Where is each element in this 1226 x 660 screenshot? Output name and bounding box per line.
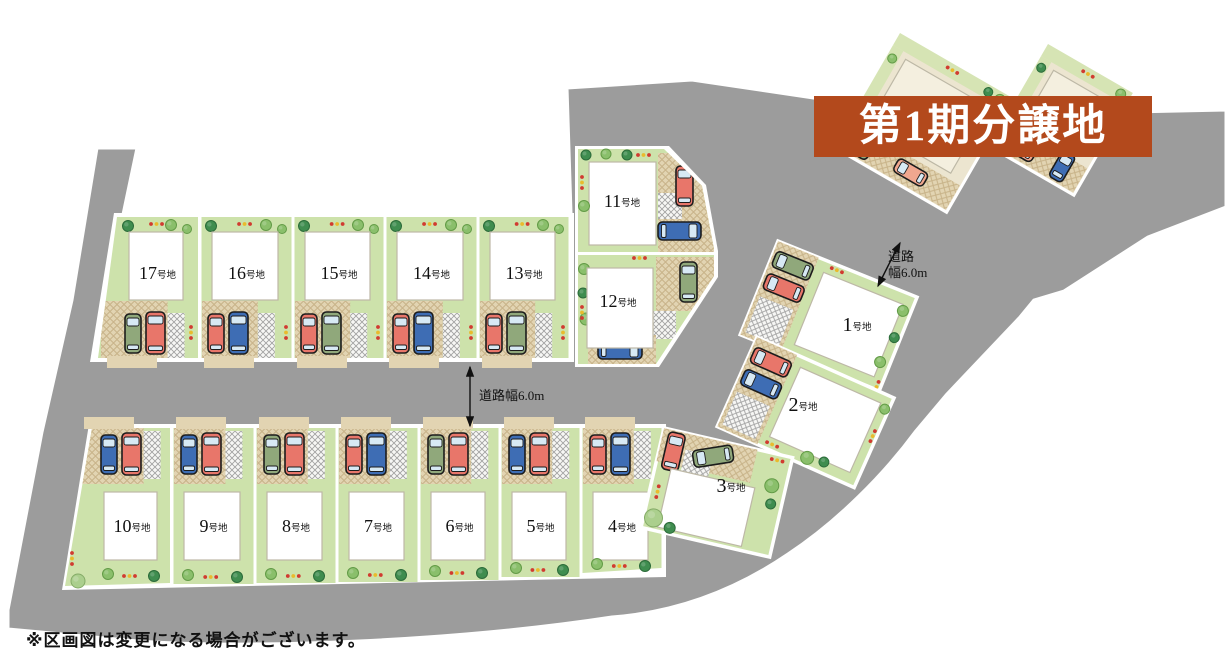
tree-highlight — [349, 569, 353, 573]
flower-icon — [376, 331, 380, 335]
tree-highlight — [267, 570, 271, 574]
lot-14: 14号地 — [387, 217, 477, 358]
tree-highlight — [447, 221, 451, 225]
flower-icon — [203, 575, 207, 579]
tree-highlight — [150, 572, 154, 576]
tree-highlight — [354, 221, 358, 225]
flower-icon — [376, 336, 380, 340]
flower-icon — [189, 331, 193, 335]
tree-icon — [477, 568, 488, 579]
tree-icon — [558, 565, 569, 576]
tree-highlight — [556, 226, 560, 230]
flower-icon — [580, 186, 584, 190]
tree-highlight — [559, 566, 563, 570]
terrace-pad — [552, 431, 569, 479]
terrace-pad — [634, 431, 651, 479]
tree-highlight — [464, 226, 468, 230]
tree-icon — [348, 568, 359, 579]
tree-icon — [484, 221, 495, 232]
tree-icon — [538, 220, 549, 231]
flower-icon — [248, 222, 252, 226]
tree-icon — [555, 225, 564, 234]
tree-highlight — [580, 290, 584, 294]
flower-icon — [580, 305, 584, 309]
flower-icon — [189, 336, 193, 340]
flower-icon — [561, 325, 565, 329]
tree-icon — [149, 571, 160, 582]
lot-16: 16号地 — [202, 217, 292, 358]
flower-icon — [561, 336, 565, 340]
flower-icon — [623, 564, 627, 568]
tree-icon — [353, 220, 364, 231]
tree-highlight — [512, 564, 516, 568]
car-icon-blue — [658, 222, 701, 240]
road-width-label-center: 道路幅6.0m — [479, 385, 544, 404]
car-icon-blue — [611, 433, 630, 475]
flower-icon — [335, 222, 339, 226]
tree-highlight — [184, 571, 188, 575]
terrace-pad — [350, 313, 367, 358]
tree-icon — [232, 572, 243, 583]
flower-icon — [469, 325, 473, 329]
tree-icon — [261, 220, 272, 231]
flower-icon — [469, 336, 473, 340]
terrace-pad — [471, 431, 488, 479]
flower-icon — [617, 564, 621, 568]
tree-highlight — [104, 570, 108, 574]
tree-highlight — [73, 576, 79, 582]
terrace-pad — [258, 313, 275, 358]
flower-icon — [526, 222, 530, 226]
driveway-apron — [176, 417, 226, 429]
flower-icon — [580, 311, 584, 315]
tree-icon — [640, 561, 651, 572]
flower-icon — [122, 574, 126, 578]
tree-icon — [511, 563, 522, 574]
car-icon-green — [507, 312, 526, 354]
flower-icon — [469, 331, 473, 335]
terrace-pad — [390, 431, 407, 479]
car-icon-red — [449, 433, 468, 475]
flower-icon — [297, 574, 301, 578]
tree-icon — [278, 225, 287, 234]
car-icon-blue — [509, 435, 525, 474]
flower-icon — [70, 557, 74, 561]
road-width-label-right: 道路 幅6.0m — [888, 249, 927, 281]
tree-icon — [183, 570, 194, 581]
car-icon-red — [202, 433, 221, 475]
driveway-apron — [585, 417, 635, 429]
tree-highlight — [603, 151, 607, 155]
driveway-apron — [259, 417, 309, 429]
tree-highlight — [279, 226, 283, 230]
tree-icon — [463, 225, 472, 234]
tree-icon — [103, 569, 114, 580]
flower-icon — [379, 573, 383, 577]
flower-icon — [189, 325, 193, 329]
driveway-apron — [423, 417, 473, 429]
road-width-label-right-line1: 道路 — [888, 249, 927, 265]
flower-icon — [433, 222, 437, 226]
driveway-apron — [341, 417, 391, 429]
lot-5: 5号地 — [502, 428, 580, 577]
flower-icon — [580, 181, 584, 185]
flower-icon — [284, 325, 288, 329]
tree-highlight — [184, 226, 188, 230]
flower-icon — [531, 568, 535, 572]
tree-highlight — [593, 560, 597, 564]
tree-icon — [579, 201, 590, 212]
tree-icon — [299, 221, 310, 232]
flower-icon — [632, 256, 636, 260]
flower-icon — [209, 575, 213, 579]
flower-icon — [291, 574, 295, 578]
tree-highlight — [207, 222, 211, 226]
tree-highlight — [580, 265, 584, 269]
car-icon-red — [346, 435, 362, 474]
flower-icon — [368, 573, 372, 577]
tree-icon — [601, 149, 611, 159]
terrace-pad — [443, 313, 460, 358]
flower-icon — [428, 222, 432, 226]
car-icon-blue — [181, 435, 197, 474]
tree-highlight — [431, 567, 435, 571]
terrace-pad — [168, 313, 185, 358]
flower-icon — [373, 573, 377, 577]
tree-highlight — [583, 152, 587, 156]
tree-highlight — [233, 573, 237, 577]
car-icon-red — [301, 314, 317, 353]
tree-icon — [166, 220, 177, 231]
site-plan-map: 17号地16号地15号地14号地13号地10号地9号地8号地7号地6号地5号地4… — [0, 0, 1226, 660]
terrace-pad — [535, 313, 552, 358]
flower-icon — [214, 575, 218, 579]
flower-icon — [284, 336, 288, 340]
flower-icon — [561, 331, 565, 335]
terrace-pad — [308, 431, 325, 479]
tree-highlight — [371, 226, 375, 230]
flower-icon — [580, 316, 584, 320]
flower-icon — [643, 256, 647, 260]
flower-icon — [128, 574, 132, 578]
flower-icon — [515, 222, 519, 226]
lot-15: 15号地 — [295, 217, 384, 358]
tree-icon — [71, 574, 85, 588]
terrace-pad — [225, 431, 242, 479]
terrace-pad — [144, 431, 161, 479]
tree-icon — [183, 225, 192, 234]
flower-icon — [647, 153, 651, 157]
flower-icon — [638, 256, 642, 260]
tree-icon — [622, 150, 632, 160]
driveway-apron — [482, 356, 532, 368]
tree-icon — [446, 220, 457, 231]
tree-highlight — [397, 571, 401, 575]
car-icon-red — [146, 312, 165, 354]
flower-icon — [450, 571, 454, 575]
tree-highlight — [478, 569, 482, 573]
flower-icon — [536, 568, 540, 572]
car-icon-green — [428, 435, 444, 474]
lot-9: 9号地 — [174, 428, 254, 584]
car-icon-blue — [414, 312, 433, 354]
flower-icon — [243, 222, 247, 226]
phase-banner: 第1期分譲地 — [814, 96, 1152, 157]
lot-7: 7号地 — [339, 428, 418, 582]
tree-highlight — [485, 222, 489, 226]
flower-icon — [520, 222, 524, 226]
driveway-apron — [297, 356, 347, 368]
flower-icon — [149, 222, 153, 226]
tree-highlight — [539, 221, 543, 225]
flower-icon — [642, 153, 646, 157]
tree-highlight — [624, 152, 628, 156]
car-icon-blue — [367, 433, 386, 475]
driveway-apron — [84, 417, 134, 429]
flower-icon — [612, 564, 616, 568]
flower-icon — [155, 222, 159, 226]
road-width-label-right-line2: 幅6.0m — [888, 265, 927, 281]
car-icon-red — [590, 435, 606, 474]
flower-icon — [636, 153, 640, 157]
tree-icon — [206, 221, 217, 232]
flower-icon — [422, 222, 426, 226]
car-icon-red — [122, 433, 141, 475]
lot-8: 8号地 — [257, 428, 336, 583]
tree-icon — [391, 221, 402, 232]
tree-highlight — [300, 222, 304, 226]
tree-highlight — [262, 221, 266, 225]
car-icon-blue — [229, 312, 248, 354]
car-icon-blue — [101, 435, 117, 474]
flower-icon — [286, 574, 290, 578]
tree-icon — [581, 150, 591, 160]
car-icon-green — [680, 262, 697, 302]
car-icon-red — [486, 314, 502, 353]
tree-icon — [430, 566, 441, 577]
car-icon-green — [322, 312, 341, 354]
tree-highlight — [580, 202, 584, 206]
tree-icon — [592, 559, 603, 570]
flower-icon — [341, 222, 345, 226]
driveway-apron — [107, 356, 157, 368]
car-icon-red — [285, 433, 304, 475]
flower-icon — [70, 551, 74, 555]
flower-icon — [330, 222, 334, 226]
flower-icon — [133, 574, 137, 578]
car-icon-red — [530, 433, 549, 475]
car-icon-red — [208, 314, 224, 353]
disclaimer-note: ※区画図は変更になる場合がございます。 — [26, 626, 366, 651]
car-icon-red — [393, 314, 409, 353]
tree-highlight — [641, 562, 645, 566]
tree-icon — [370, 225, 379, 234]
driveway-apron — [204, 356, 254, 368]
tree-highlight — [392, 222, 396, 226]
flower-icon — [160, 222, 164, 226]
tree-highlight — [124, 222, 128, 226]
driveway-apron — [389, 356, 439, 368]
lot-6: 6号地 — [421, 428, 499, 580]
driveway-apron — [504, 417, 554, 429]
flower-icon — [376, 325, 380, 329]
tree-icon — [123, 221, 134, 232]
flower-icon — [70, 562, 74, 566]
flower-icon — [580, 175, 584, 179]
flower-icon — [455, 571, 459, 575]
car-icon-green — [264, 435, 280, 474]
tree-icon — [314, 571, 325, 582]
tree-icon — [396, 570, 407, 581]
flower-icon — [284, 331, 288, 335]
car-icon-green — [125, 314, 141, 353]
tree-highlight — [167, 221, 171, 225]
lot-13: 13号地 — [480, 217, 569, 358]
flower-icon — [461, 571, 465, 575]
tree-highlight — [315, 572, 319, 576]
flower-icon — [542, 568, 546, 572]
tree-icon — [266, 569, 277, 580]
flower-icon — [237, 222, 241, 226]
